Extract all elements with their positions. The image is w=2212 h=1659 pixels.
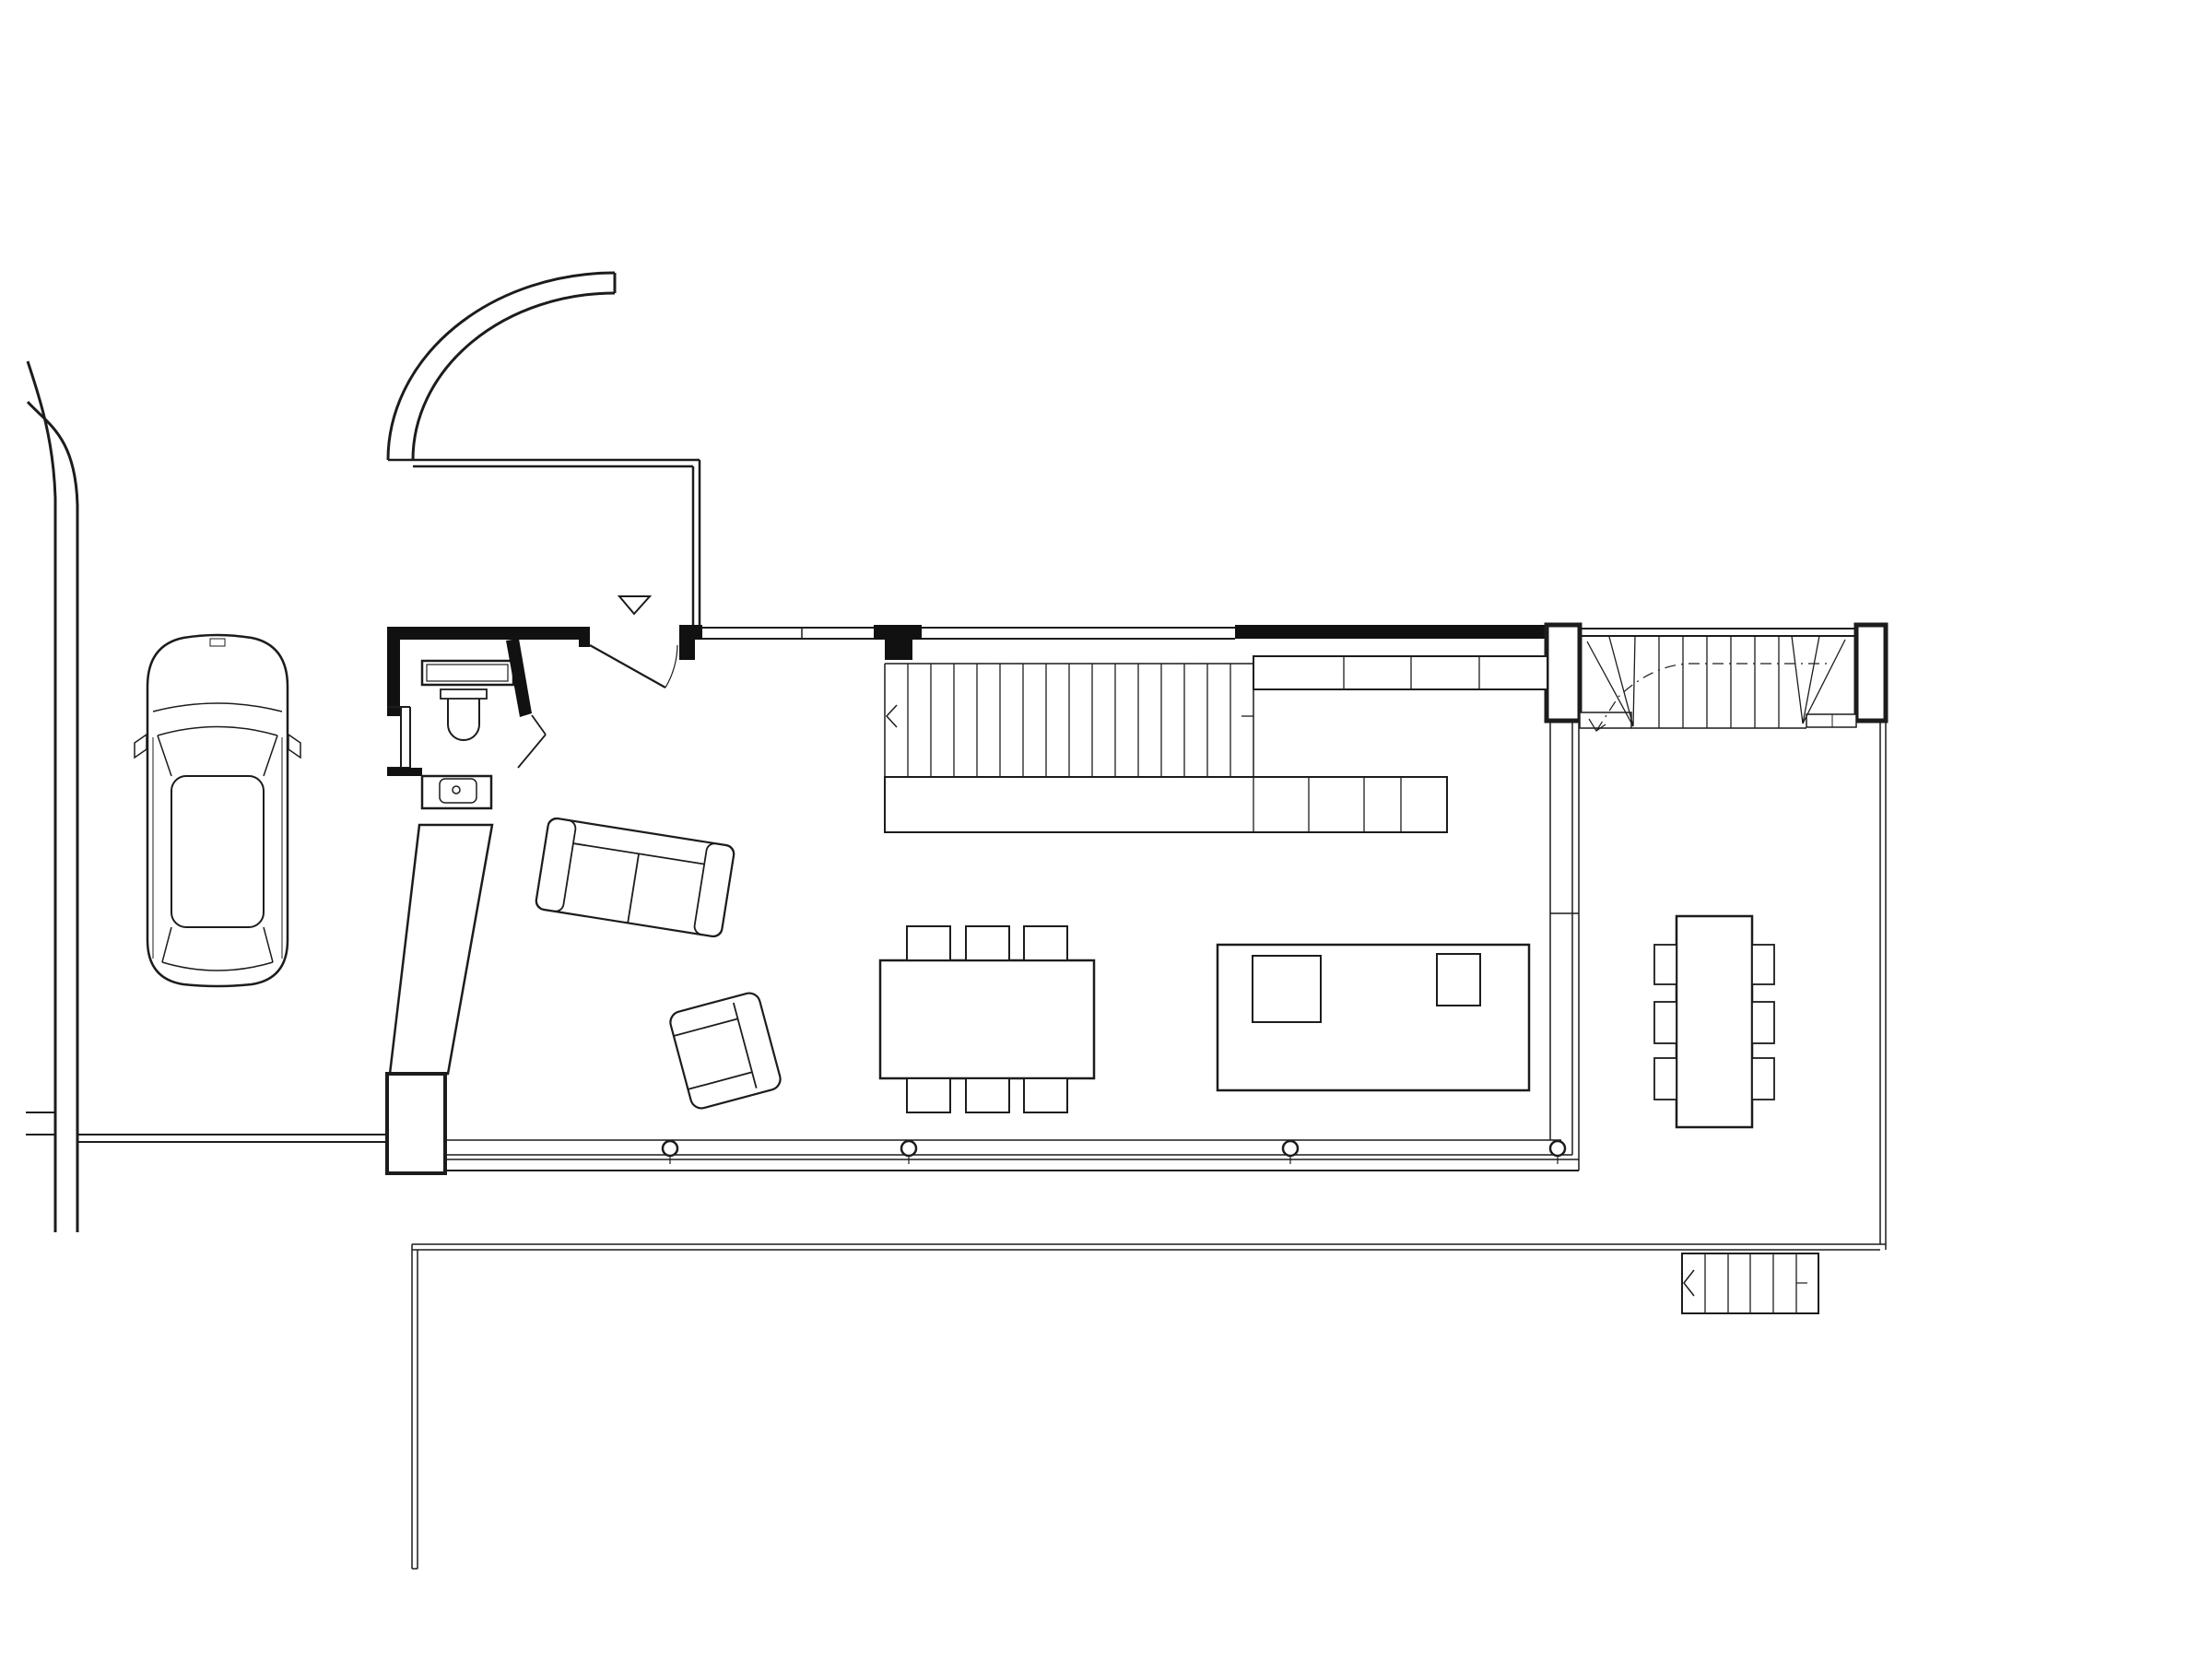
terrace-chair-right-2 — [1752, 1002, 1774, 1043]
wall-north-west — [387, 627, 590, 640]
kitchen-wall-counter — [1253, 656, 1547, 689]
terrace-chair-right-3 — [1752, 1058, 1774, 1100]
dining-chair-top-1 — [907, 926, 950, 960]
wc-toilet-cistern — [441, 689, 487, 699]
island-cooktop — [1253, 956, 1321, 1022]
wall-pier-northeast — [1856, 625, 1886, 721]
car-mirror-right — [288, 735, 300, 758]
dining-table — [880, 960, 1094, 1078]
car-body — [147, 635, 288, 986]
facade-column-1 — [663, 1141, 677, 1156]
wall-pier-east — [1547, 625, 1580, 721]
wc-door-leaf — [518, 735, 546, 768]
facade-column-3 — [1283, 1141, 1298, 1156]
car-front-badge — [210, 639, 225, 646]
entry-door-jamb — [579, 640, 590, 647]
car-mirror-left — [135, 735, 147, 758]
dining-chair-bottom-1 — [907, 1078, 950, 1112]
wall-north-east — [1235, 625, 1548, 639]
entry-direction-marker — [619, 596, 650, 614]
wall-west-upper — [387, 627, 400, 716]
dining-chair-bottom-2 — [966, 1078, 1009, 1112]
winder-fan-right-2 — [1803, 636, 1819, 724]
wall-corner-southwest — [387, 1074, 445, 1173]
terrace-chair-right-1 — [1752, 945, 1774, 984]
terrace-table — [1677, 916, 1752, 1127]
wall-pier-north-stem — [885, 640, 912, 660]
winder-bottom-step — [1580, 712, 1631, 728]
wall-entry-east-pier-stem — [679, 640, 695, 660]
stair-direction-arrow — [887, 705, 897, 727]
road-edge-outer — [28, 361, 55, 1232]
road-edge-inner — [28, 402, 77, 1232]
armchair-body — [668, 991, 783, 1111]
wc-toilet-bowl — [448, 699, 479, 740]
terrace-chair-left-3 — [1654, 1058, 1677, 1100]
wall-wc-south — [387, 768, 422, 776]
courtyard-wall-arc-outer — [388, 273, 615, 460]
dining-chair-top-2 — [966, 926, 1009, 960]
wall-west-lower-slanted — [390, 825, 492, 1074]
winder-fan-right-1 — [1792, 636, 1803, 724]
floor-plan-page — [0, 0, 2212, 1659]
dining-chair-top-3 — [1024, 926, 1067, 960]
winder-top-landing — [1806, 714, 1856, 727]
wall-entry-east-pier — [679, 625, 702, 640]
entry-door-swing-arc — [665, 645, 677, 688]
island-sink — [1437, 954, 1480, 1006]
facade-column-2 — [901, 1141, 916, 1156]
facade-column-4 — [1550, 1141, 1565, 1156]
wc-door-jamb — [532, 715, 546, 735]
floor-plan-drawing — [0, 0, 2212, 1659]
winder-fan-right-3 — [1803, 640, 1845, 724]
terrace-chair-left-2 — [1654, 1002, 1677, 1043]
terrace-chair-left-1 — [1654, 945, 1677, 984]
dining-chair-bottom-3 — [1024, 1078, 1067, 1112]
entry-door-leaf — [590, 645, 665, 688]
winder-fan-left-3 — [1633, 636, 1635, 726]
wall-pier-north — [874, 625, 922, 640]
understair-cabinets — [885, 777, 1447, 832]
courtyard-wall-arc-inner — [413, 293, 615, 460]
